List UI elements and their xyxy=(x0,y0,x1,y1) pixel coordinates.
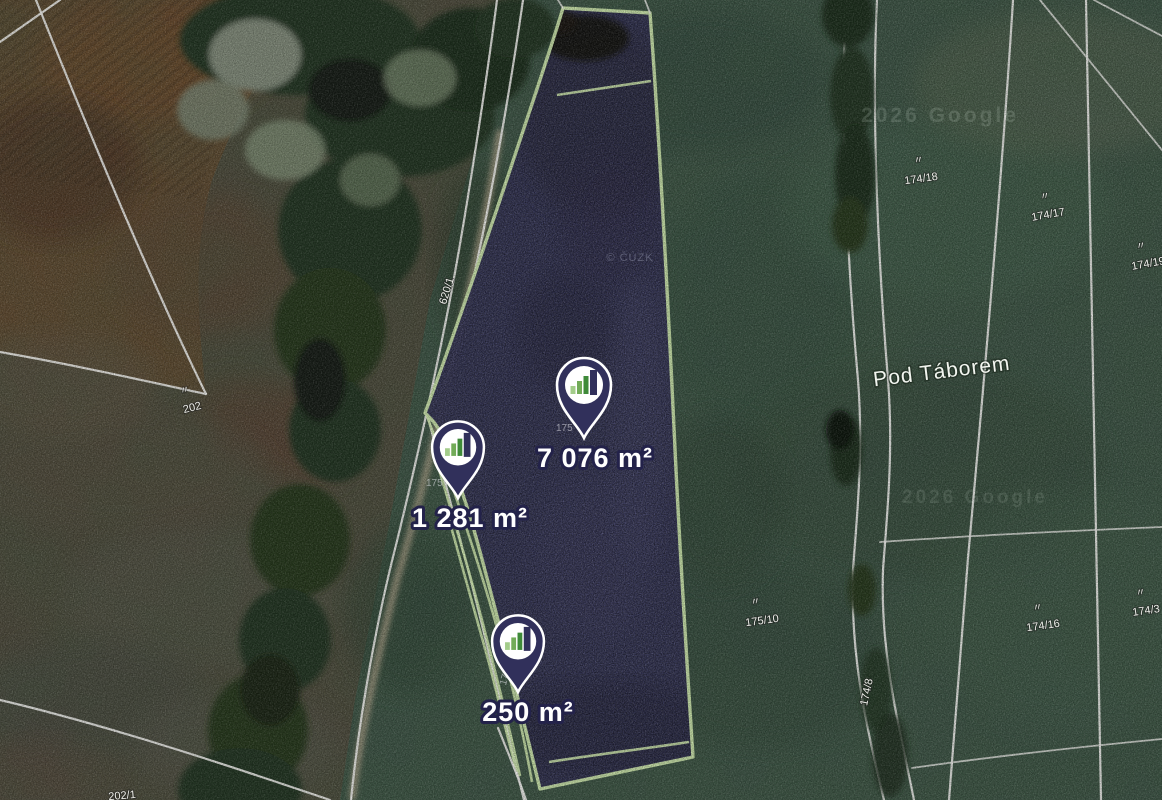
ditto-mark: 〃 xyxy=(1135,240,1147,253)
parcel-number-occluded: 175 xyxy=(556,423,573,434)
map-canvas[interactable]: 2026 Google 2026 Google © ČÚZK 〃 174/18 … xyxy=(0,0,1162,800)
parcel-number-202-1: 202/1 xyxy=(108,789,136,800)
ditto-mark: 〃 xyxy=(913,155,924,167)
ditto-mark: 〃 xyxy=(1039,190,1051,203)
area-label-7076: 7 076 m² xyxy=(537,443,653,473)
ditto-mark: 〃 xyxy=(1135,587,1146,599)
area-label-1281: 1 281 m² xyxy=(412,503,528,533)
ditto-mark: 〃 xyxy=(1032,602,1043,614)
google-watermark-center: 2026 Google xyxy=(902,487,1048,508)
cuzk-watermark: © ČÚZK xyxy=(606,251,653,264)
ditto-mark: 〃 xyxy=(750,596,761,608)
area-label-250: 250 m² xyxy=(482,697,574,727)
parcel-number-occluded: 175 xyxy=(426,478,443,489)
satellite-map[interactable]: 2026 Google 2026 Google © ČÚZK 〃 174/18 … xyxy=(0,0,1162,800)
google-watermark-top: 2026 Google xyxy=(861,104,1019,127)
